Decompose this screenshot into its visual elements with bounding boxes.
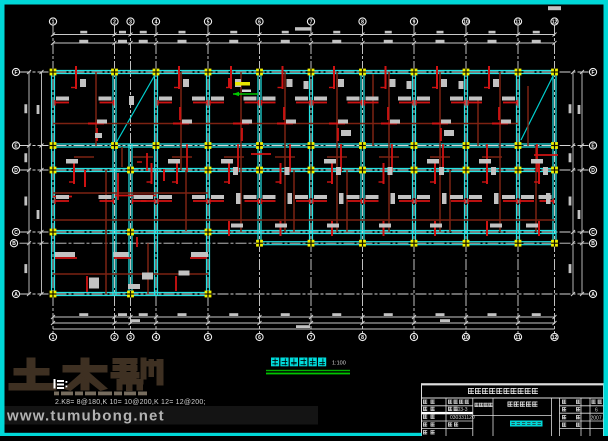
- svg-text:6: 6: [595, 408, 598, 414]
- svg-text:03-3: 03-3: [458, 407, 468, 413]
- svg-text:9: 9: [413, 335, 416, 341]
- svg-text:1:100: 1:100: [332, 361, 346, 367]
- svg-text:3: 3: [129, 335, 132, 341]
- svg-text:F: F: [591, 70, 594, 76]
- svg-text:4: 4: [155, 335, 158, 341]
- svg-text:12: 12: [552, 19, 558, 25]
- svg-text:2: 2: [113, 335, 116, 341]
- svg-text:10: 10: [463, 19, 469, 25]
- svg-text:D: D: [591, 168, 595, 174]
- svg-text:12: 12: [552, 335, 558, 341]
- svg-text:7: 7: [310, 335, 313, 341]
- svg-text:9: 9: [413, 19, 416, 25]
- svg-text:030331120: 030331120: [450, 415, 475, 421]
- svg-text:A: A: [591, 292, 595, 298]
- svg-text:8: 8: [361, 19, 364, 25]
- svg-text:1: 1: [52, 19, 55, 25]
- svg-text:www.tumubong.net: www.tumubong.net: [6, 408, 165, 425]
- svg-text:6: 6: [258, 19, 261, 25]
- svg-text:4: 4: [155, 19, 158, 25]
- svg-text:B: B: [591, 241, 595, 247]
- svg-text:D: D: [14, 168, 18, 174]
- svg-text:2: 2: [113, 19, 116, 25]
- svg-text:C: C: [14, 230, 18, 236]
- svg-text:11: 11: [515, 335, 521, 341]
- svg-text:5: 5: [207, 335, 210, 341]
- svg-text:A: A: [14, 292, 18, 298]
- svg-text:6: 6: [258, 335, 261, 341]
- svg-text:10: 10: [463, 335, 469, 341]
- svg-text:7: 7: [310, 19, 313, 25]
- svg-text:C: C: [591, 230, 595, 236]
- svg-text:2.K8= 8@180,K 10= 10@200,K: 2.K8= 8@180,K 10= 10@200,K 12= 12@200;: [55, 399, 206, 406]
- svg-text:B: B: [12, 241, 16, 247]
- svg-text:8: 8: [361, 335, 364, 341]
- svg-text:1: 1: [52, 335, 55, 341]
- svg-text:F: F: [14, 70, 17, 76]
- svg-text:5: 5: [207, 19, 210, 25]
- svg-text:11: 11: [515, 19, 521, 25]
- svg-text:3: 3: [129, 19, 132, 25]
